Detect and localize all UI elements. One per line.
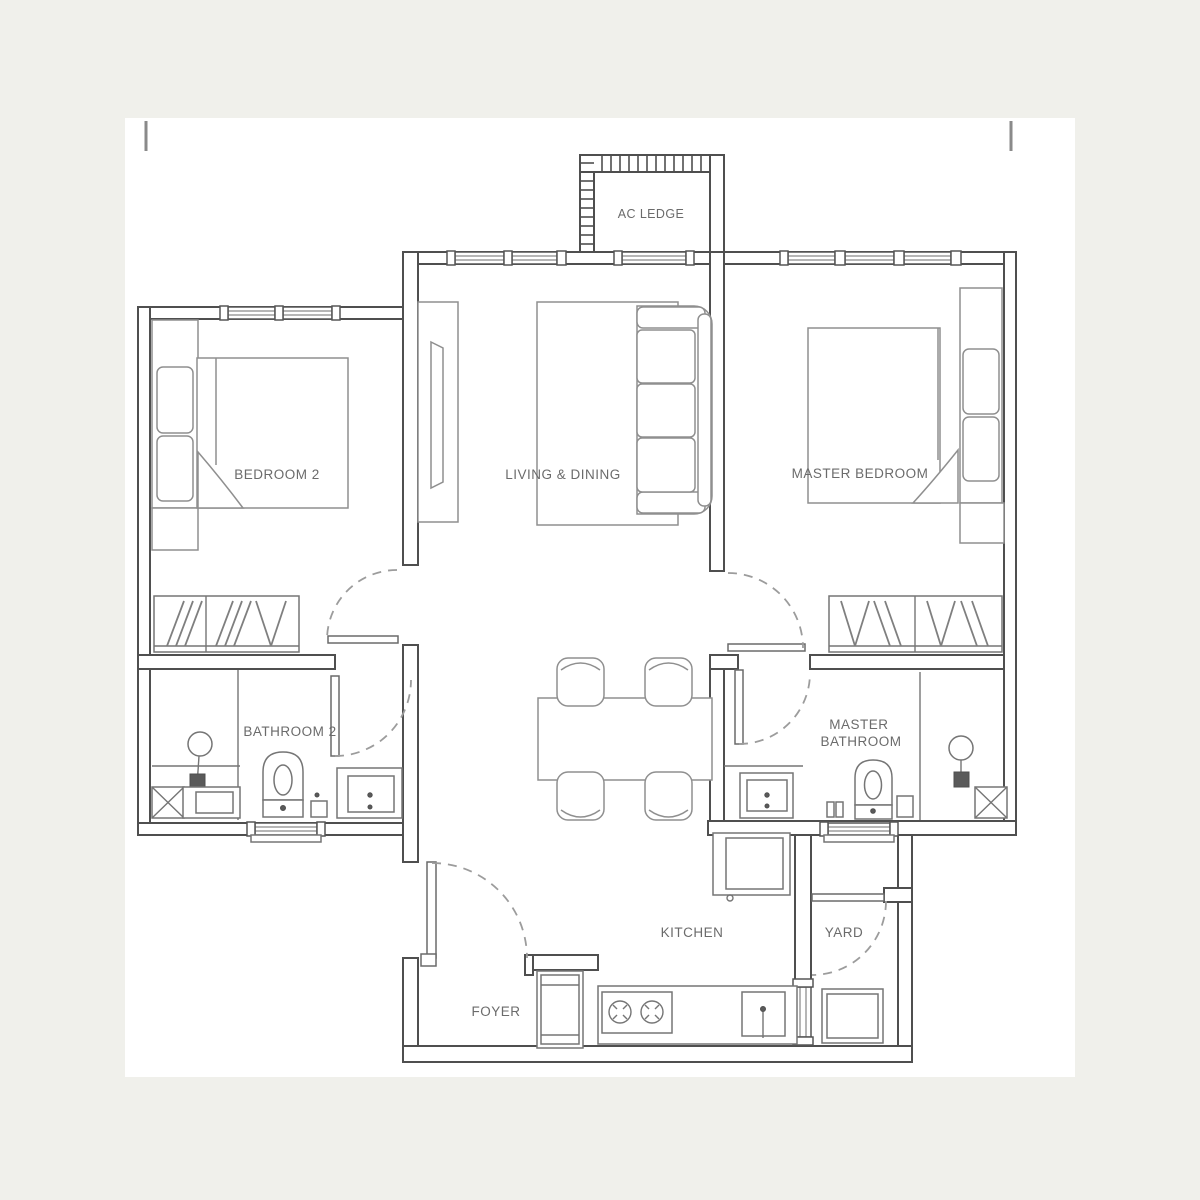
vanity-sink-icon [337, 768, 402, 818]
washing-machine-icon [822, 989, 883, 1043]
floor-plan-page: AC LEDGE [0, 0, 1200, 1200]
sofa-cushion [637, 330, 695, 383]
tv-icon [431, 342, 443, 488]
dining-chair-icon [557, 658, 604, 706]
toilet-icon [855, 760, 892, 819]
fridge-icon [713, 833, 790, 901]
room-label-living-dining: LIVING & DINING [505, 467, 621, 482]
floor-trap-icon [152, 787, 184, 818]
dining-table-icon [538, 698, 712, 780]
sink-icon [742, 992, 785, 1038]
sofa-cushion [637, 438, 695, 492]
window-master-bathroom [820, 822, 898, 842]
sofa-cushion [637, 384, 695, 437]
room-label-kitchen: KITCHEN [661, 925, 724, 940]
bedside-table [152, 508, 198, 550]
window-bedroom2-top [220, 306, 340, 320]
floor-trap-small-icon [311, 801, 327, 817]
room-label-foyer: FOYER [471, 1004, 520, 1019]
floor-plan-drawing: AC LEDGE [0, 0, 1200, 1200]
pillow-icon [157, 436, 193, 501]
sofa-icon [637, 306, 712, 514]
bedroom2-wardrobe-icon [154, 596, 299, 652]
vanity-sink-icon [740, 773, 793, 818]
dining-chair-icon [645, 772, 692, 820]
room-label-bedroom2: BEDROOM 2 [234, 467, 320, 482]
room-label-bathroom2: BATHROOM 2 [243, 724, 336, 739]
pillow-icon [963, 349, 999, 414]
bedside-table [960, 503, 1004, 543]
window-bathroom2 [247, 822, 325, 842]
floor-trap-icon [975, 787, 1007, 818]
hob-icon [602, 992, 672, 1033]
room-label-yard: YARD [825, 925, 864, 940]
room-label-ac-ledge: AC LEDGE [618, 207, 684, 221]
sofa-backrest [698, 314, 711, 506]
master-wardrobe-icon [829, 596, 1002, 652]
dining-chair-icon [557, 772, 604, 820]
pillow-icon [157, 367, 193, 433]
floor-trap-small-icon [897, 796, 913, 817]
sofa-armrest [637, 492, 705, 513]
dining-chair-icon [645, 658, 692, 706]
room-label-master-bedroom: MASTER BEDROOM [792, 466, 929, 481]
sofa-armrest [637, 307, 705, 328]
window-master-top [780, 251, 961, 265]
pillow-icon [963, 417, 999, 481]
shoe-cabinet-icon [537, 971, 583, 1048]
